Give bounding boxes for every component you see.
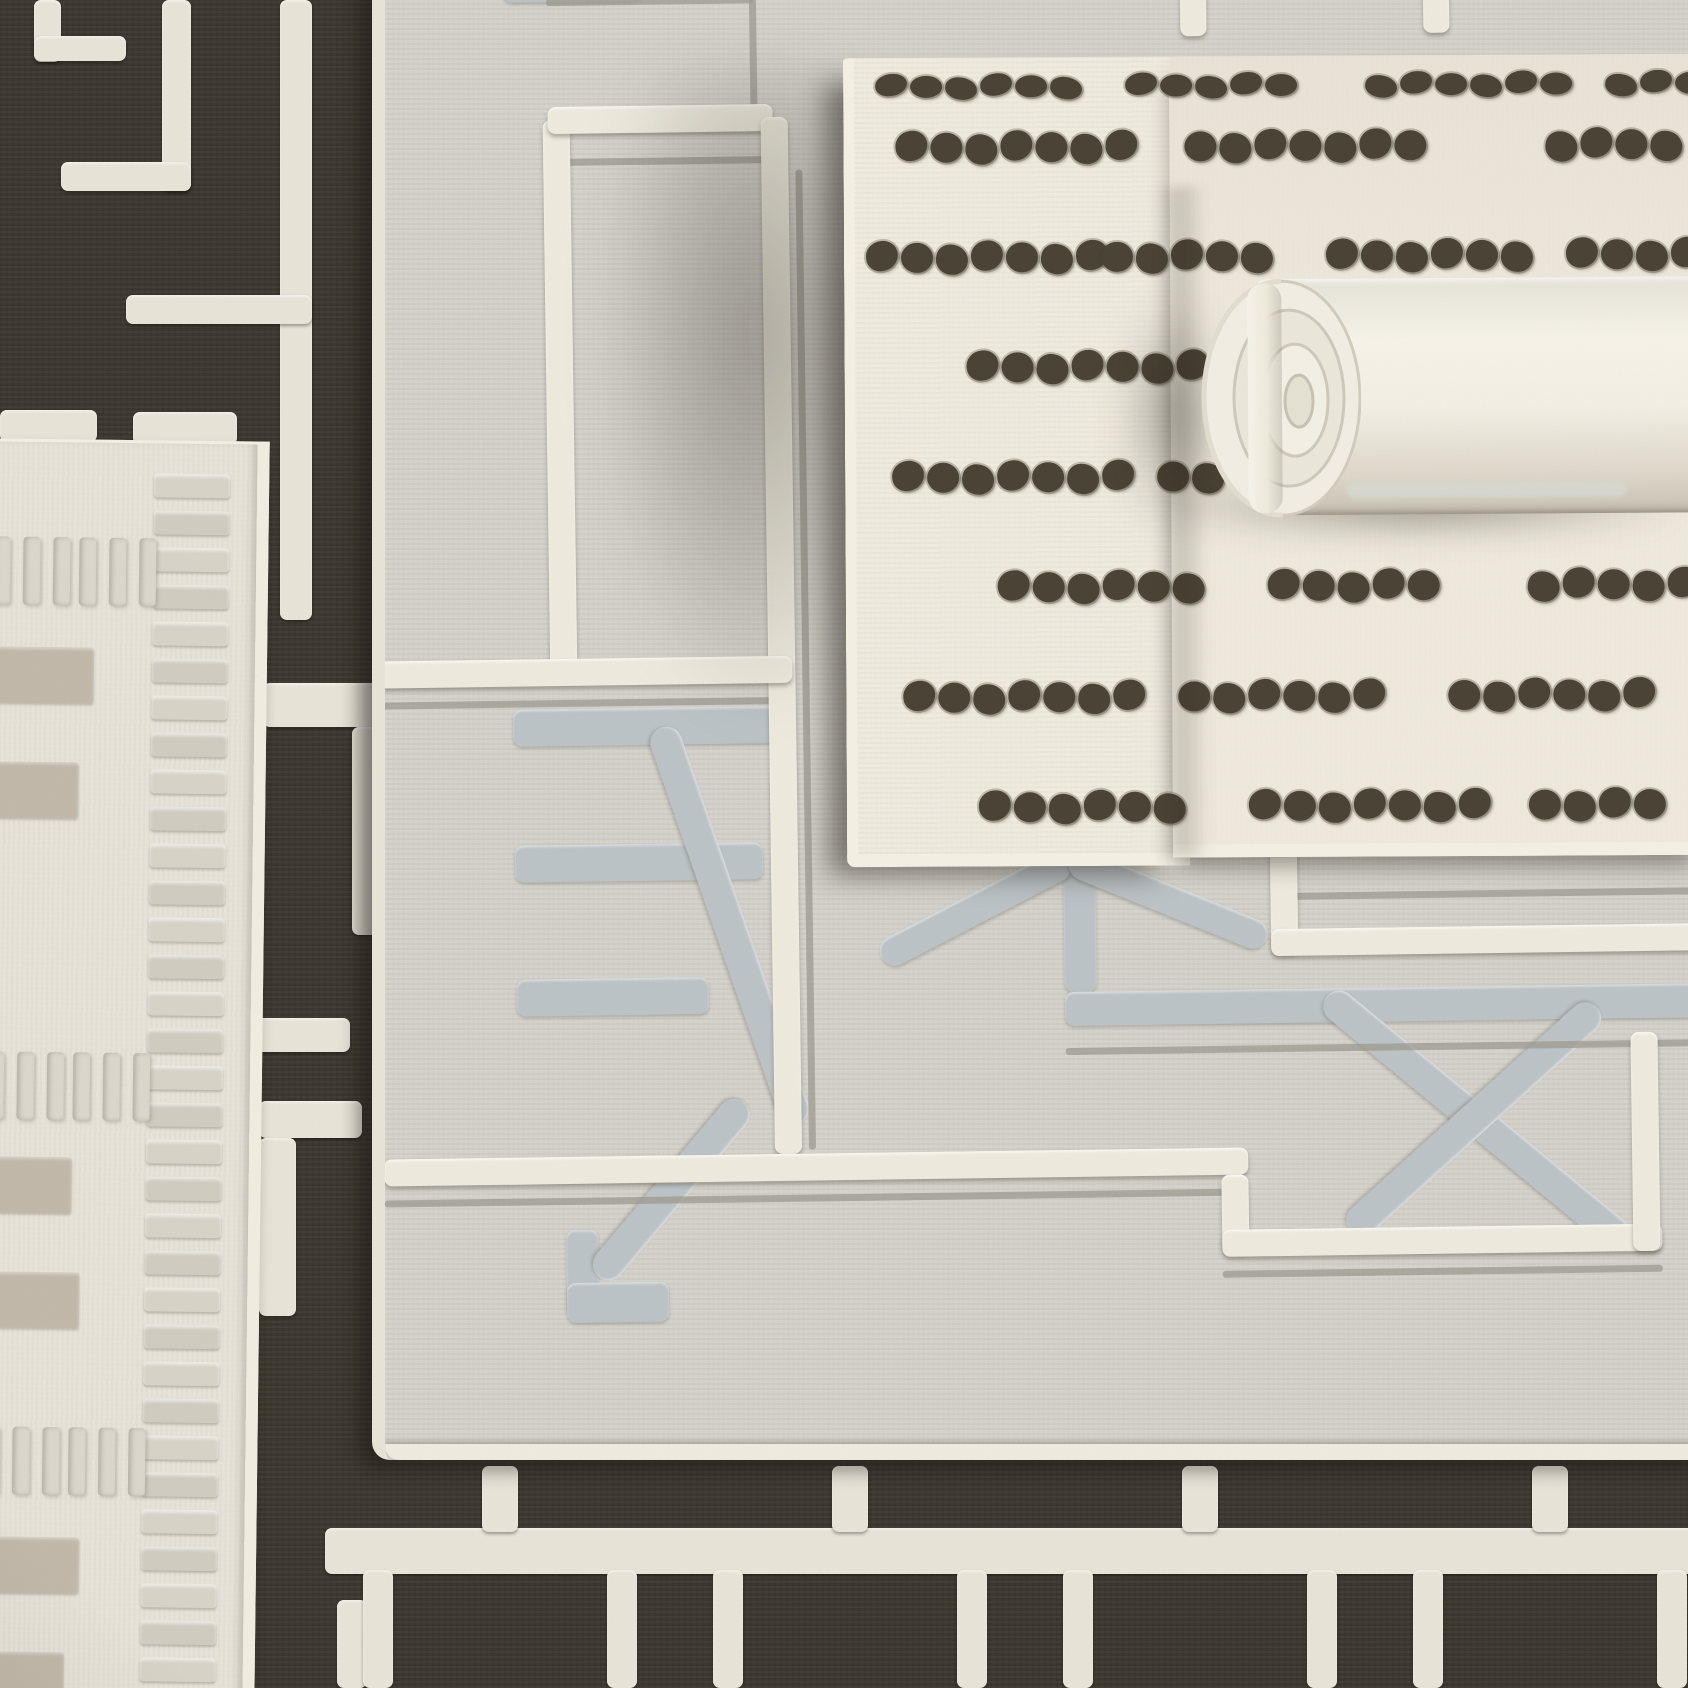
dot [1601,239,1633,269]
dot [874,72,908,97]
dot [1283,681,1315,711]
dot [1358,127,1393,160]
dot [1389,790,1421,820]
pile-dash [102,1053,120,1121]
dot [1194,74,1229,100]
dark-rug-pattern-piece [61,162,191,191]
dot [1184,131,1216,161]
dot [1466,240,1498,270]
dot [1171,571,1207,605]
pile-dash [72,1052,90,1120]
rib-dash [153,547,229,572]
dot [1070,348,1105,381]
rib-dash [149,843,225,868]
dot-row [846,239,1688,273]
white-border-segment [377,656,792,689]
dot [1006,242,1038,272]
rib-dash [143,1398,219,1423]
dark-rug-rect-wall [1413,1570,1443,1688]
dark-rug-pattern-piece [126,295,312,324]
dot [960,463,996,497]
dot [1266,567,1301,600]
dot [1211,681,1247,715]
dot [979,72,1013,97]
dot-row [849,789,1688,823]
dot [1422,790,1458,824]
dot [1429,236,1464,269]
rolled-rug [1195,274,1688,520]
dark-rug-pattern-piece [0,410,97,442]
dot [1336,571,1372,605]
dot [1101,458,1136,491]
rib-dash [152,658,228,683]
rib-dash [140,1657,216,1682]
dot [1035,132,1067,162]
dot [1247,677,1282,710]
dot [1517,676,1552,709]
dot [1540,72,1572,94]
pile-dash [0,536,11,604]
dark-rug-rect-wall [1657,1570,1687,1688]
dot [1140,352,1176,386]
dot [1371,567,1406,600]
rib-dash [142,1435,218,1460]
dot [965,349,1000,382]
white-border-segment [547,104,772,134]
dot [1615,129,1647,159]
dot [1352,677,1387,710]
dot [1352,787,1387,820]
rib-dash [142,1472,218,1497]
dot [1394,240,1430,274]
rib-dash [149,880,225,905]
dot [1504,69,1538,94]
white-border-segment [543,120,578,677]
dot [891,459,926,492]
dark-rug-pattern-piece [259,1138,296,1316]
dark-rug-pattern-piece [259,1101,362,1138]
dot [1206,241,1238,271]
rib-dash [141,1546,217,1571]
dot [1101,568,1136,601]
dot [1218,131,1254,165]
thin-guide-line [548,156,773,166]
dot [1669,235,1688,268]
dot [1675,72,1688,94]
dot [927,463,959,493]
dot [1169,238,1204,271]
dot [971,682,1007,716]
dot [1124,71,1158,96]
taupe-bar [0,646,94,703]
dot [1435,73,1467,95]
dot [1316,681,1352,715]
dot [864,239,899,272]
rib-dash [146,1139,222,1164]
taupe-bar [0,1156,72,1213]
dot [1138,572,1170,602]
dark-rug-stub [482,1466,518,1532]
dot [1082,788,1117,821]
dark-rug-pattern-piece [253,1018,350,1052]
dot [1562,789,1598,823]
dot [1364,73,1399,99]
rib-dash [154,473,230,498]
rib-dash [141,1509,217,1534]
dot [1065,462,1101,496]
dark-rug-pattern-piece [263,683,387,727]
thin-guide-line [385,1188,1249,1207]
motif-diagonal [586,1092,756,1287]
dot-row [845,129,1688,163]
dot-row [848,679,1688,713]
dot [1134,242,1170,276]
dot [969,239,1004,272]
dot [1289,131,1321,161]
dot [1579,126,1614,159]
dot [1229,70,1263,95]
dot [1035,352,1071,386]
dark-rug-bottom-bar [325,1528,1688,1574]
dot [1634,789,1666,819]
dark-rug-rect-wall [1063,1570,1093,1688]
dot [934,243,970,277]
dot [930,133,962,163]
dot [999,129,1034,162]
dot [1604,72,1639,98]
dot [1399,70,1433,95]
rib-dash [154,510,230,535]
dot [1317,791,1353,825]
dot [944,76,979,102]
dot [1553,679,1585,709]
rug-photo-scene [0,0,1688,1688]
dot [996,459,1031,492]
dot [1076,682,1112,716]
dot [1265,74,1297,96]
thin-guide-line [546,0,753,6]
pile-dash [23,537,41,605]
rib-dash [140,1583,216,1608]
pile-dash [42,1427,60,1495]
dark-rug-pattern-piece [34,36,126,61]
dot [1015,75,1047,97]
white-border-segment [1179,0,1206,36]
rib-dash [152,621,228,646]
dot [1544,129,1580,163]
dark-rug-rect-wall [1307,1570,1337,1688]
rib-dash [145,1213,221,1238]
pile-dash [139,538,157,606]
taupe-bar [0,1651,64,1688]
taupe-bar [0,1536,79,1593]
rib-dash [147,1028,223,1053]
dot [1104,128,1139,161]
motif-bar [517,977,709,1017]
dot [1323,131,1359,165]
pile-dash [109,538,127,606]
dot [910,76,942,98]
dot [1178,681,1210,711]
motif-bar [567,1282,670,1323]
white-border-segment [1630,1032,1660,1251]
dark-rug-stub [832,1466,868,1532]
dot [1529,790,1561,820]
dot [1014,792,1046,822]
dot [1408,570,1440,600]
gray-rug-bottom-binding [385,1444,1688,1460]
pile-dash [79,537,97,605]
roll-wrap-edge [1247,283,1283,513]
rib-dash [150,806,226,831]
rib-dash [150,769,226,794]
dot [902,679,937,712]
dot [1303,571,1335,601]
dot [1526,570,1562,604]
dot [1112,678,1147,711]
rib-dash [147,1065,223,1090]
dot [1039,242,1075,276]
dot [894,129,929,162]
rib-dash [149,917,225,942]
dot [1066,572,1102,606]
dot [1649,129,1685,163]
dot [1247,787,1282,820]
pile-dash [98,1428,116,1496]
dot [1639,68,1673,93]
rib-dash [145,1250,221,1275]
dot [1666,565,1688,598]
dark-rug-rect-wall [713,1570,743,1688]
dot [1157,461,1189,491]
white-border-segment [1271,918,1688,956]
dot-row [845,72,1688,98]
thin-guide-line [1270,882,1688,900]
dot [1253,127,1288,160]
dot-row [848,569,1688,603]
dot [901,243,933,273]
dot [1598,569,1630,599]
pile-dash [53,537,71,605]
dot [1561,566,1596,599]
rib-dash [151,732,227,757]
dot [1049,75,1084,101]
white-border-segment [1422,0,1449,33]
dot [1634,239,1670,273]
dot [1324,237,1359,270]
dot [1119,792,1151,822]
white-border-segment [384,1147,1248,1186]
dot [1448,680,1480,710]
pile-dash [16,1052,34,1120]
dot [1032,462,1064,492]
dot [1457,786,1492,819]
rib-dash [148,954,224,979]
dot [1239,241,1275,275]
dark-rug-stub [1532,1466,1568,1532]
thin-guide-line [1223,1265,1663,1278]
dot [1101,242,1133,272]
pile-dash [128,1428,146,1496]
dark-rug-rect-wall [607,1570,637,1688]
dot [1007,679,1042,712]
dot [1499,240,1535,274]
rib-dash [144,1287,220,1312]
left-cream-rug [0,438,270,1688]
dot [1622,675,1657,708]
rib-dash [140,1620,216,1645]
rib-dash [144,1324,220,1349]
rib-dash [145,1176,221,1201]
dot [1284,791,1316,821]
dark-rug-rect-wall [957,1570,987,1688]
dot [1631,569,1667,603]
rib-dash [153,584,229,609]
rib-dash [148,991,224,1016]
dot [996,569,1031,602]
rib-dash [143,1361,219,1386]
pile-dash [46,1052,64,1120]
dot [1597,786,1632,819]
dot [1469,73,1504,99]
pile-dash [132,1053,150,1121]
dot [1586,679,1622,713]
dot [977,789,1012,822]
dot [1069,132,1105,166]
dot [1043,682,1075,712]
thin-guide-line [749,0,758,108]
dot [1361,240,1393,270]
dot [964,133,1000,167]
dot [1033,572,1065,602]
dark-rug-rect-wall [363,1570,393,1688]
rib-dash [151,695,227,720]
dot [1047,792,1083,826]
pile-dash [68,1427,86,1495]
taupe-bar [0,761,79,818]
dot [1394,130,1426,160]
dot [1160,74,1192,96]
dot [1564,236,1599,269]
pile-dash [0,1051,4,1119]
pile-dash [12,1427,30,1495]
dot [1106,352,1138,382]
rib-dash [146,1102,222,1127]
dot [1481,680,1517,714]
dark-rug-stub [1182,1466,1218,1532]
white-border-segment [1222,1224,1662,1257]
dot [938,683,970,713]
dot [1001,352,1033,382]
taupe-bar [0,1271,80,1328]
dot [1152,792,1188,826]
